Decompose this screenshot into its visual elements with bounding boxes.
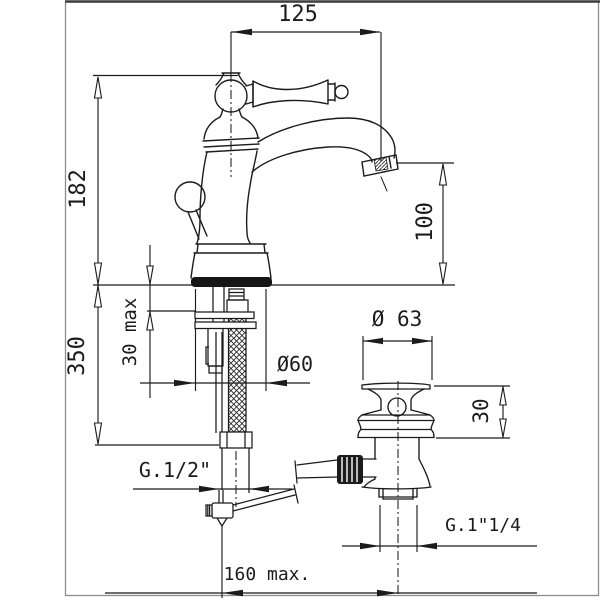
arrowheads-open <box>95 77 507 444</box>
dim-inlet-thread: G.1/2" <box>139 458 211 482</box>
dim-spout-height: 100 <box>413 202 438 242</box>
knurled-nut <box>337 455 363 484</box>
dimension-lines <box>93 32 537 598</box>
faucet-body <box>175 73 398 278</box>
lever-finial <box>335 86 348 99</box>
popup-waste <box>358 383 434 499</box>
aerator-screen <box>374 158 388 172</box>
dim-waste-thread: G.1"1/4 <box>445 515 521 536</box>
technical-drawing-canvas: 125 182 100 350 30 max Ø60 Ø 63 30 G.1/2… <box>0 0 600 600</box>
dim-total-height: 182 <box>66 169 91 209</box>
dim-rod-reach-max: 160 max. <box>224 564 311 585</box>
base-gasket <box>191 277 272 287</box>
dim-spout-reach: 125 <box>278 2 318 27</box>
centerlines <box>231 73 398 594</box>
faucet-dimension-drawing: 125 182 100 350 30 max Ø60 Ø 63 30 G.1/2… <box>0 0 600 600</box>
dim-base-diameter: Ø60 <box>277 352 313 376</box>
dim-deck-thickness-max: 30 max <box>119 298 141 367</box>
dim-waste-flange-height: 30 <box>469 398 493 423</box>
overflow-hole <box>388 398 406 416</box>
dim-hose-length: 350 <box>65 336 90 376</box>
dim-waste-flange-diameter: Ø 63 <box>372 307 423 331</box>
drawing-frame <box>65 2 600 596</box>
